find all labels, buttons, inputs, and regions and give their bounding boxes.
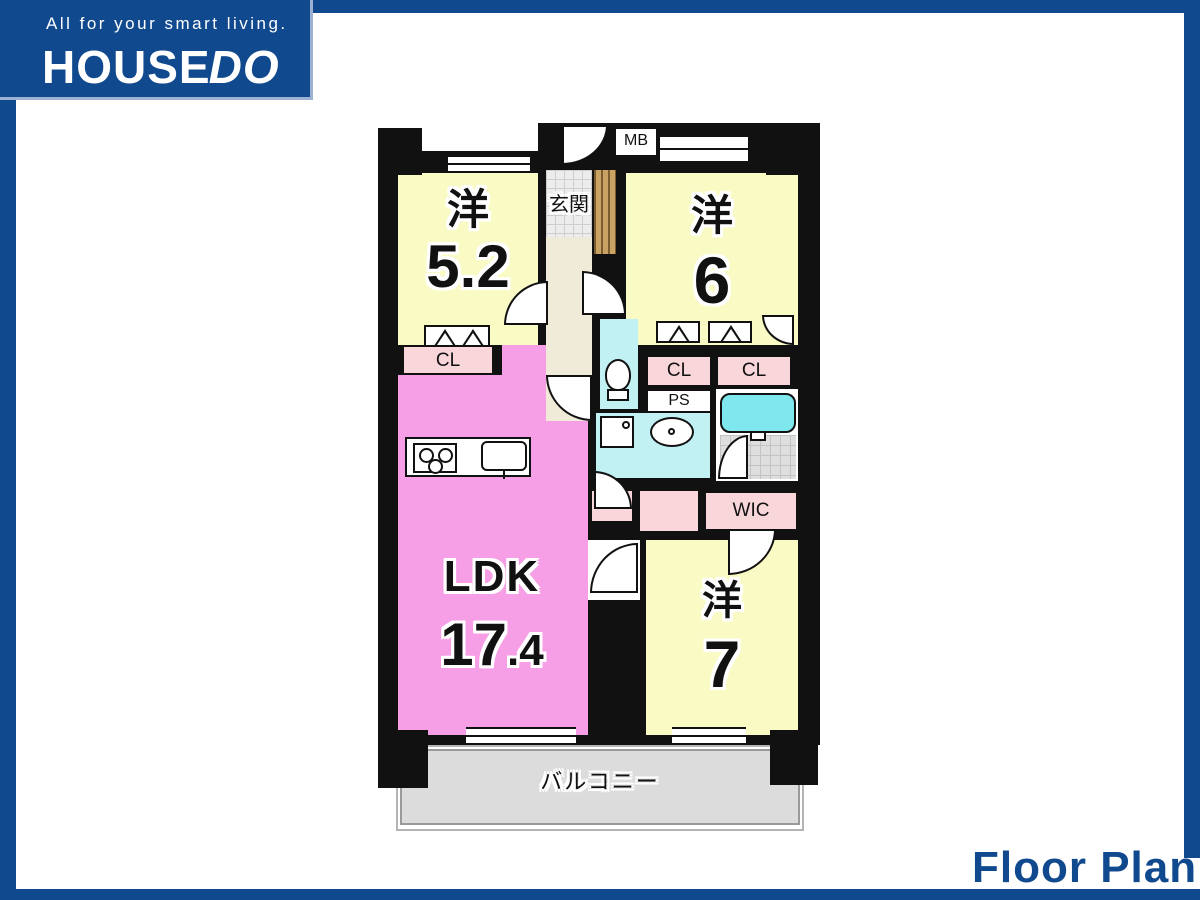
label-ldk-kind: LDK [412, 555, 572, 599]
room-ldk-notch [502, 345, 546, 379]
wash-counter-icon [600, 416, 634, 448]
label-west52-size: 5.2 [398, 237, 538, 297]
stove-icon [413, 443, 457, 473]
window-west52-top [448, 155, 530, 173]
folding-door-west6-a [656, 321, 700, 343]
label-west7-kind: 洋 [654, 581, 790, 621]
bathtub-icon [720, 393, 796, 433]
folding-door-peak [434, 329, 456, 346]
corner-block-top-right [766, 123, 820, 175]
label-cl-mid: CL [648, 361, 710, 380]
toilet-tank-icon [607, 389, 629, 401]
brand-wordmark-accent: DO [209, 41, 280, 93]
bath-tap-icon [750, 431, 766, 441]
folding-door-peak [720, 325, 742, 342]
brand-wordmark: HOUSEDO [42, 40, 280, 94]
brand-wordmark-main: HOUSE [42, 41, 211, 93]
folding-door-peak [462, 329, 484, 346]
label-mb: MB [616, 133, 656, 149]
brand-tagline: All for your smart living. [46, 14, 306, 34]
corner-block-top-left [378, 128, 422, 175]
brand-logo-box: All for your smart living. HOUSEDO [0, 0, 313, 100]
label-west6-kind: 洋 [642, 195, 782, 237]
floor-plan-title: Floor Plan [972, 843, 1197, 893]
label-west7-size: 7 [654, 631, 790, 697]
label-west52-kind: 洋 [406, 189, 530, 231]
window-west7-bottom [672, 727, 746, 745]
label-cl-right: CL [718, 361, 790, 380]
label-west6-size: 6 [642, 247, 782, 313]
storage-band-b [640, 491, 698, 531]
folding-door-peak [668, 325, 690, 342]
label-balcony: バルコニー [400, 771, 800, 793]
label-cl-left: CL [404, 351, 492, 370]
label-wic: WIC [706, 501, 796, 520]
wash-counter-hole-icon [622, 421, 630, 429]
window-west6-top [660, 135, 748, 163]
frame-left [0, 0, 16, 900]
label-ldk-size: 17.4 [402, 615, 582, 675]
kitchen-sink-icon [481, 441, 527, 471]
folding-door-west52 [424, 325, 490, 347]
label-ldk-size-dec: .4 [507, 626, 544, 675]
window-ldk-bottom [466, 727, 576, 745]
toilet-icon [605, 359, 631, 391]
folding-door-west6-b [708, 321, 752, 343]
label-entrance: 玄関 [540, 195, 598, 215]
kitchen-tap-icon [503, 469, 505, 479]
stove-burner-icon [428, 459, 443, 474]
label-ldk-size-int: 17 [440, 611, 507, 678]
washbasin-drain-icon [668, 428, 675, 435]
floor-plan: 洋 5.2 洋 6 洋 7 LDK 17.4 玄関 バルコニー MB CL CL… [378, 123, 820, 830]
label-ps: PS [648, 393, 710, 409]
frame-right [1184, 0, 1200, 858]
